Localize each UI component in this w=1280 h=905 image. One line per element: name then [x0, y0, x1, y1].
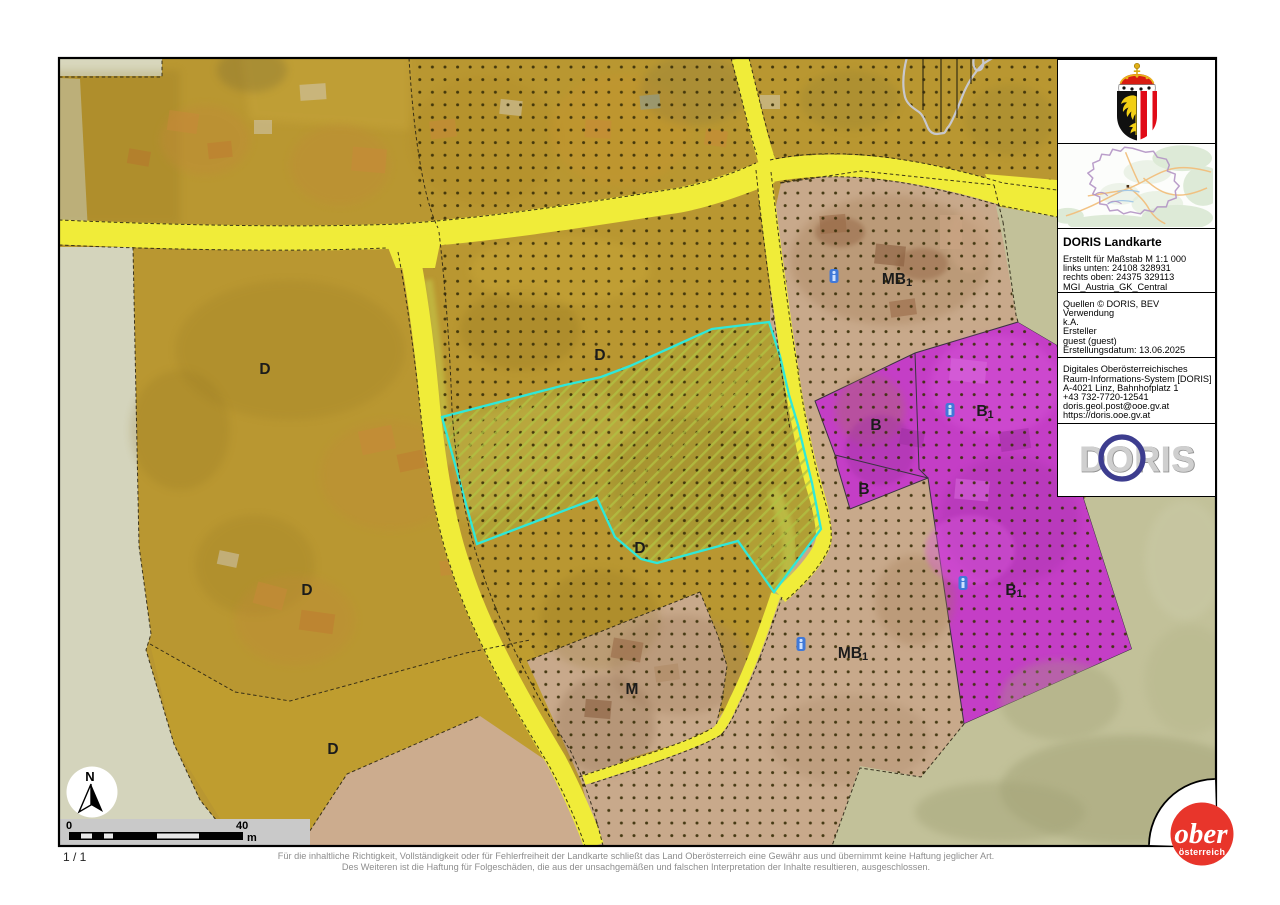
svg-text:D: D [259, 361, 270, 378]
svg-text:D: D [327, 741, 338, 758]
svg-text:M: M [626, 681, 639, 698]
svg-text:m: m [247, 832, 257, 844]
svg-text:B: B [870, 417, 881, 434]
svg-text:ober: ober [1174, 818, 1228, 850]
svg-text:N: N [85, 769, 94, 784]
svg-text:0: 0 [66, 820, 72, 832]
svg-text:D: D [594, 347, 605, 364]
svg-text:B: B [858, 481, 869, 498]
svg-text:D: D [634, 540, 645, 557]
svg-text:40: 40 [236, 820, 248, 832]
svg-text:D: D [301, 582, 312, 599]
